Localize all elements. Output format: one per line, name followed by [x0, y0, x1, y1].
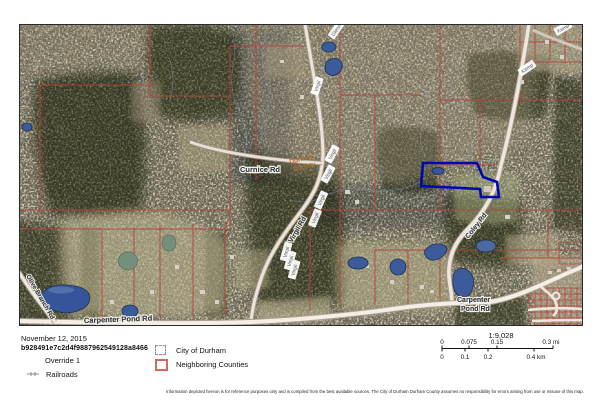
svg-text:0: 0	[440, 339, 444, 346]
svg-text:0.2: 0.2	[484, 354, 493, 361]
svg-text:0.4 km: 0.4 km	[527, 354, 546, 361]
svg-text:0.1: 0.1	[461, 354, 470, 361]
svg-text:Carpenter: Carpenter	[457, 297, 490, 304]
svg-text:0: 0	[440, 354, 444, 361]
svg-text:Pond Rd: Pond Rd	[461, 306, 490, 313]
svg-text:0.075: 0.075	[461, 339, 477, 346]
svg-text:0.3 mi: 0.3 mi	[542, 339, 559, 346]
svg-text:Curnice Rd: Curnice Rd	[240, 165, 280, 174]
svg-text:0.15: 0.15	[491, 339, 504, 346]
